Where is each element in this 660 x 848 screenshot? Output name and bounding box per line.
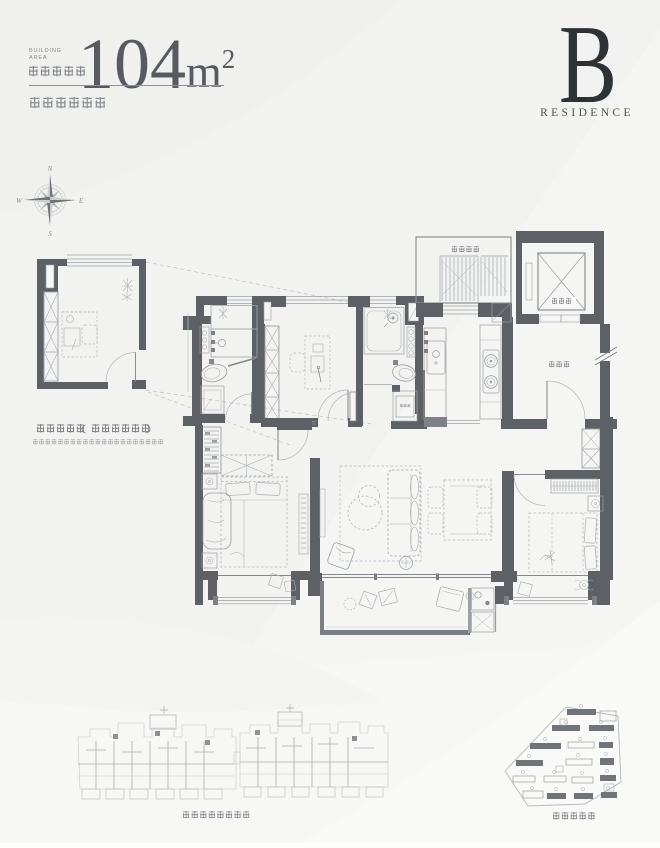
svg-text:BUILDING: BUILDING bbox=[29, 48, 62, 54]
svg-text:RESIDENCE: RESIDENCE bbox=[540, 107, 634, 119]
svg-text:E: E bbox=[78, 197, 84, 205]
svg-text:N: N bbox=[47, 165, 53, 173]
svg-text:AREA: AREA bbox=[29, 55, 47, 61]
svg-text:S: S bbox=[48, 230, 52, 238]
